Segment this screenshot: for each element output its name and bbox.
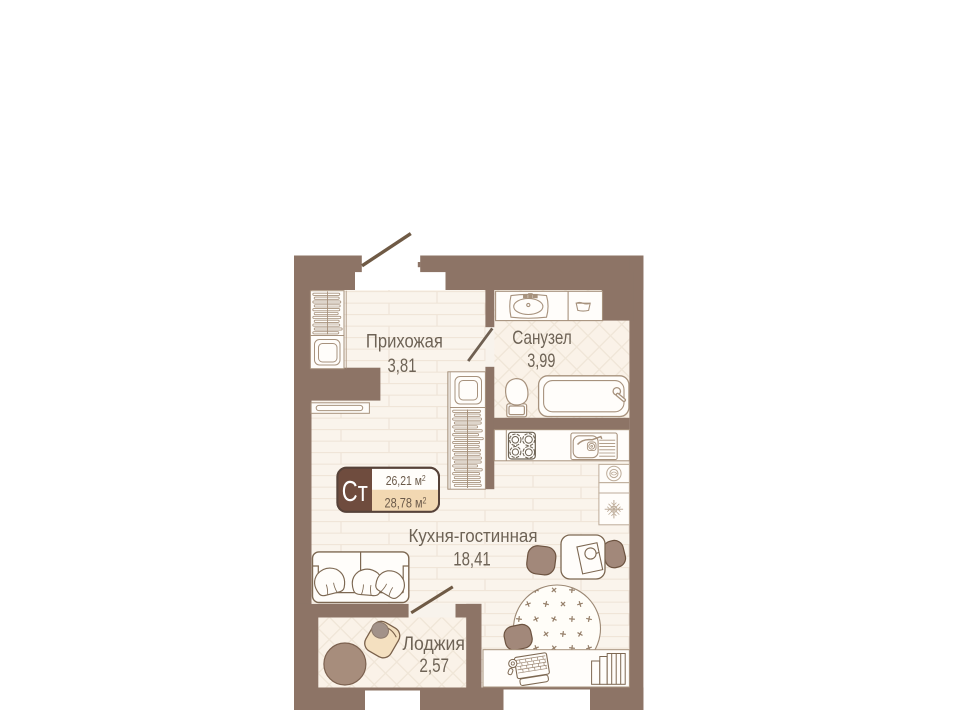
svg-text:Лоджия: Лоджия bbox=[403, 633, 465, 655]
svg-text:3,99: 3,99 bbox=[527, 350, 555, 372]
svg-text:28,78 м2: 28,78 м2 bbox=[385, 495, 427, 510]
svg-text:Кухня-гостинная: Кухня-гостинная bbox=[409, 525, 538, 546]
svg-text:3,81: 3,81 bbox=[388, 355, 417, 377]
svg-text:26,21 м2: 26,21 м2 bbox=[386, 473, 426, 488]
svg-text:Санузел: Санузел bbox=[512, 327, 572, 349]
svg-text:Прихожая: Прихожая bbox=[366, 331, 443, 352]
svg-text:Ст: Ст bbox=[342, 476, 368, 508]
svg-text:18,41: 18,41 bbox=[453, 549, 491, 570]
svg-text:2,57: 2,57 bbox=[419, 655, 449, 677]
